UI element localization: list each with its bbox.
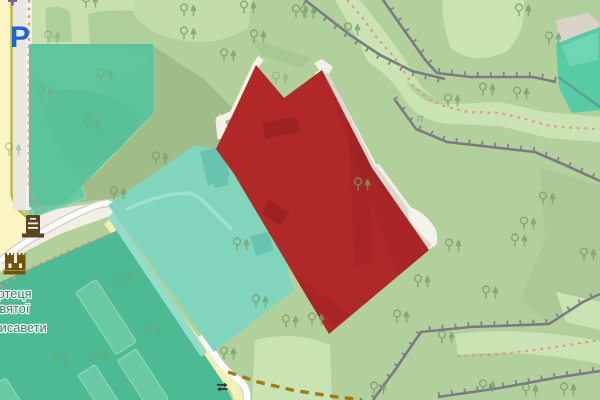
svg-text:ІТ: ІТ <box>417 115 424 124</box>
svg-text:Єлисавети: Єлисавети <box>0 320 47 335</box>
svg-text:P: P <box>10 21 30 54</box>
svg-text:фортеця: фортеця <box>0 286 32 301</box>
svg-text:святої: святої <box>0 301 30 316</box>
